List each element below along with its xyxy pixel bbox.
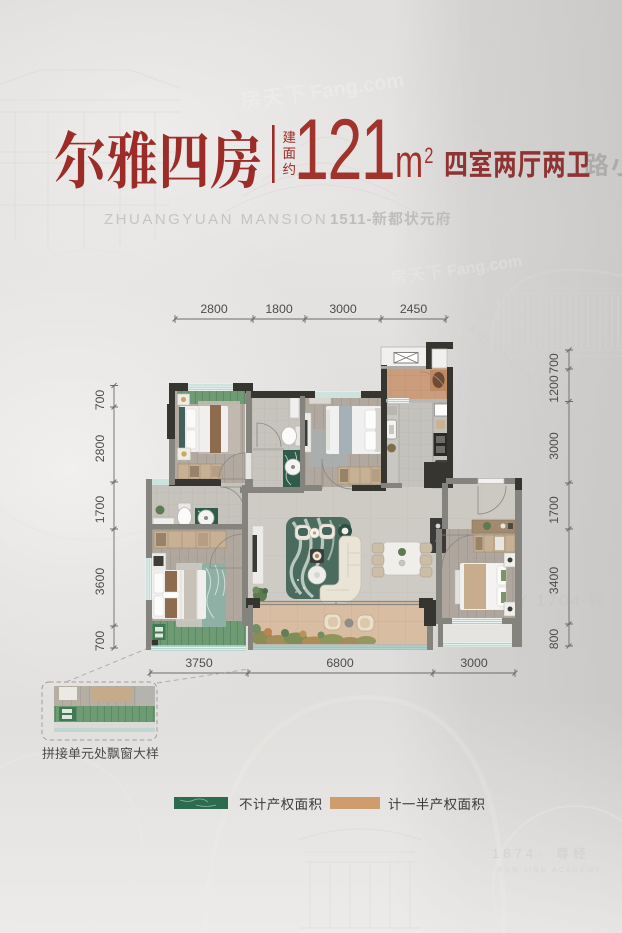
svg-text:700: 700 [93,631,107,652]
svg-text:121: 121 [294,101,394,197]
svg-text:XUN JING ACADEMY: XUN JING ACADEMY [498,867,602,874]
svg-text:3000: 3000 [547,432,561,460]
svg-text:3000: 3000 [460,656,488,670]
svg-text:700: 700 [547,353,561,374]
svg-text:6800: 6800 [326,656,354,670]
svg-text:1700: 1700 [93,496,107,524]
svg-text:800: 800 [547,629,561,650]
svg-text:m: m [395,137,423,187]
svg-text:3750: 3750 [185,656,213,670]
svg-text:2800: 2800 [93,435,107,463]
svg-text:1511-: 1511- [330,211,373,228]
svg-text:3400: 3400 [547,567,561,595]
svg-text:1700: 1700 [547,496,561,524]
svg-text:1200: 1200 [547,375,561,403]
svg-text:1800: 1800 [265,302,293,316]
svg-text:2: 2 [424,144,433,169]
svg-text:1874·: 1874· [492,846,545,861]
svg-text:ZHUANGYUAN MANSION: ZHUANGYUAN MANSION [104,211,328,228]
svg-text:2800: 2800 [200,302,228,316]
svg-text:2450: 2450 [400,302,428,316]
svg-text:700: 700 [93,390,107,411]
svg-text:3600: 3600 [93,568,107,596]
svg-text:3000: 3000 [329,302,357,316]
